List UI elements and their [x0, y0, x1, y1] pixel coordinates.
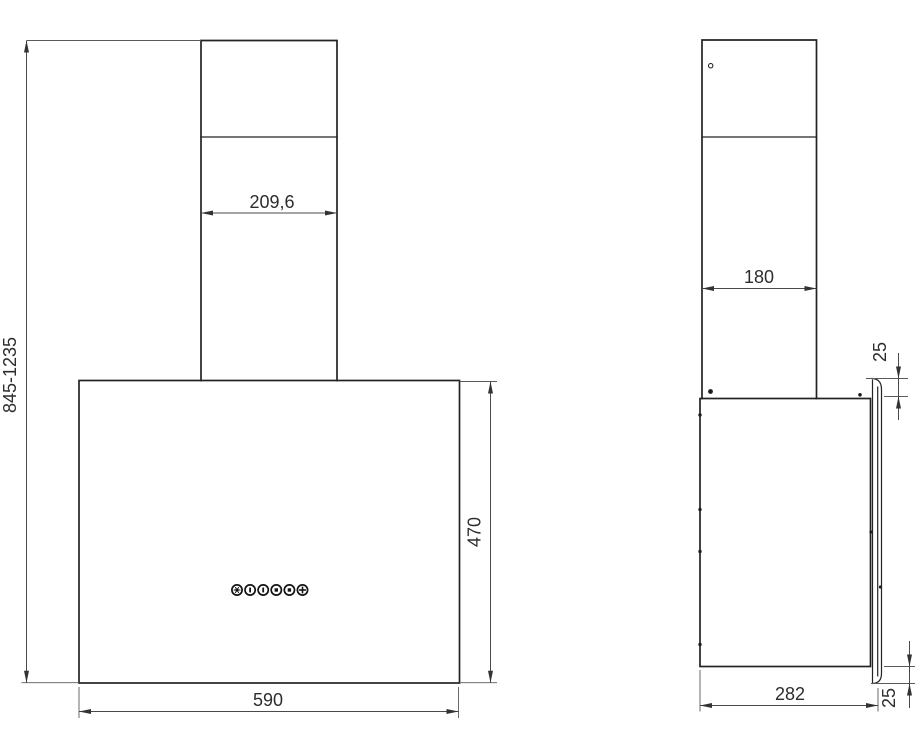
- light-icon: [232, 585, 242, 595]
- dim-front-chimney-width: 209,6: [201, 192, 337, 213]
- dim-front-total-height: 845-1235: [0, 41, 201, 683]
- side-view: 180 25 282 25: [698, 40, 915, 712]
- control-panel: [232, 585, 308, 595]
- dim-label-chimney-width: 209,6: [249, 192, 294, 212]
- technical-drawing-canvas: 209,6 845-1235 470 590: [0, 0, 922, 755]
- dim-side-body-depth: 282: [700, 670, 878, 712]
- dim-label-panel-top-offset: 25: [870, 342, 890, 362]
- dim-label-body-width: 590: [253, 690, 283, 710]
- front-body-outline: [79, 381, 460, 684]
- chimney-screw-hole: [709, 63, 713, 67]
- speed-2-icon: [258, 585, 268, 595]
- side-chimney-outline: [702, 40, 817, 399]
- front-view: 209,6 845-1235 470 590: [0, 41, 497, 719]
- dim-label-chimney-depth: 180: [744, 267, 774, 287]
- dim-label-body-depth: 282: [775, 684, 805, 704]
- hood-dimension-drawing: 209,6 845-1235 470 590: [0, 0, 922, 755]
- timer-icon: [297, 585, 307, 595]
- dim-label-body-height: 470: [465, 517, 485, 547]
- dim-front-body-width: 590: [79, 687, 459, 718]
- speed-4-icon: [284, 585, 294, 595]
- dim-front-body-height: 470: [460, 382, 498, 683]
- dim-side-chimney-depth: 180: [702, 267, 817, 289]
- glass-panel: [872, 379, 882, 684]
- speed-1-icon: [245, 585, 255, 595]
- speed-3-icon: [271, 585, 281, 595]
- fastener-marks: [698, 389, 882, 646]
- side-body-outline: [700, 399, 871, 667]
- dim-label-total-height: 845-1235: [0, 337, 20, 413]
- dim-label-panel-bottom-offset: 25: [879, 688, 899, 708]
